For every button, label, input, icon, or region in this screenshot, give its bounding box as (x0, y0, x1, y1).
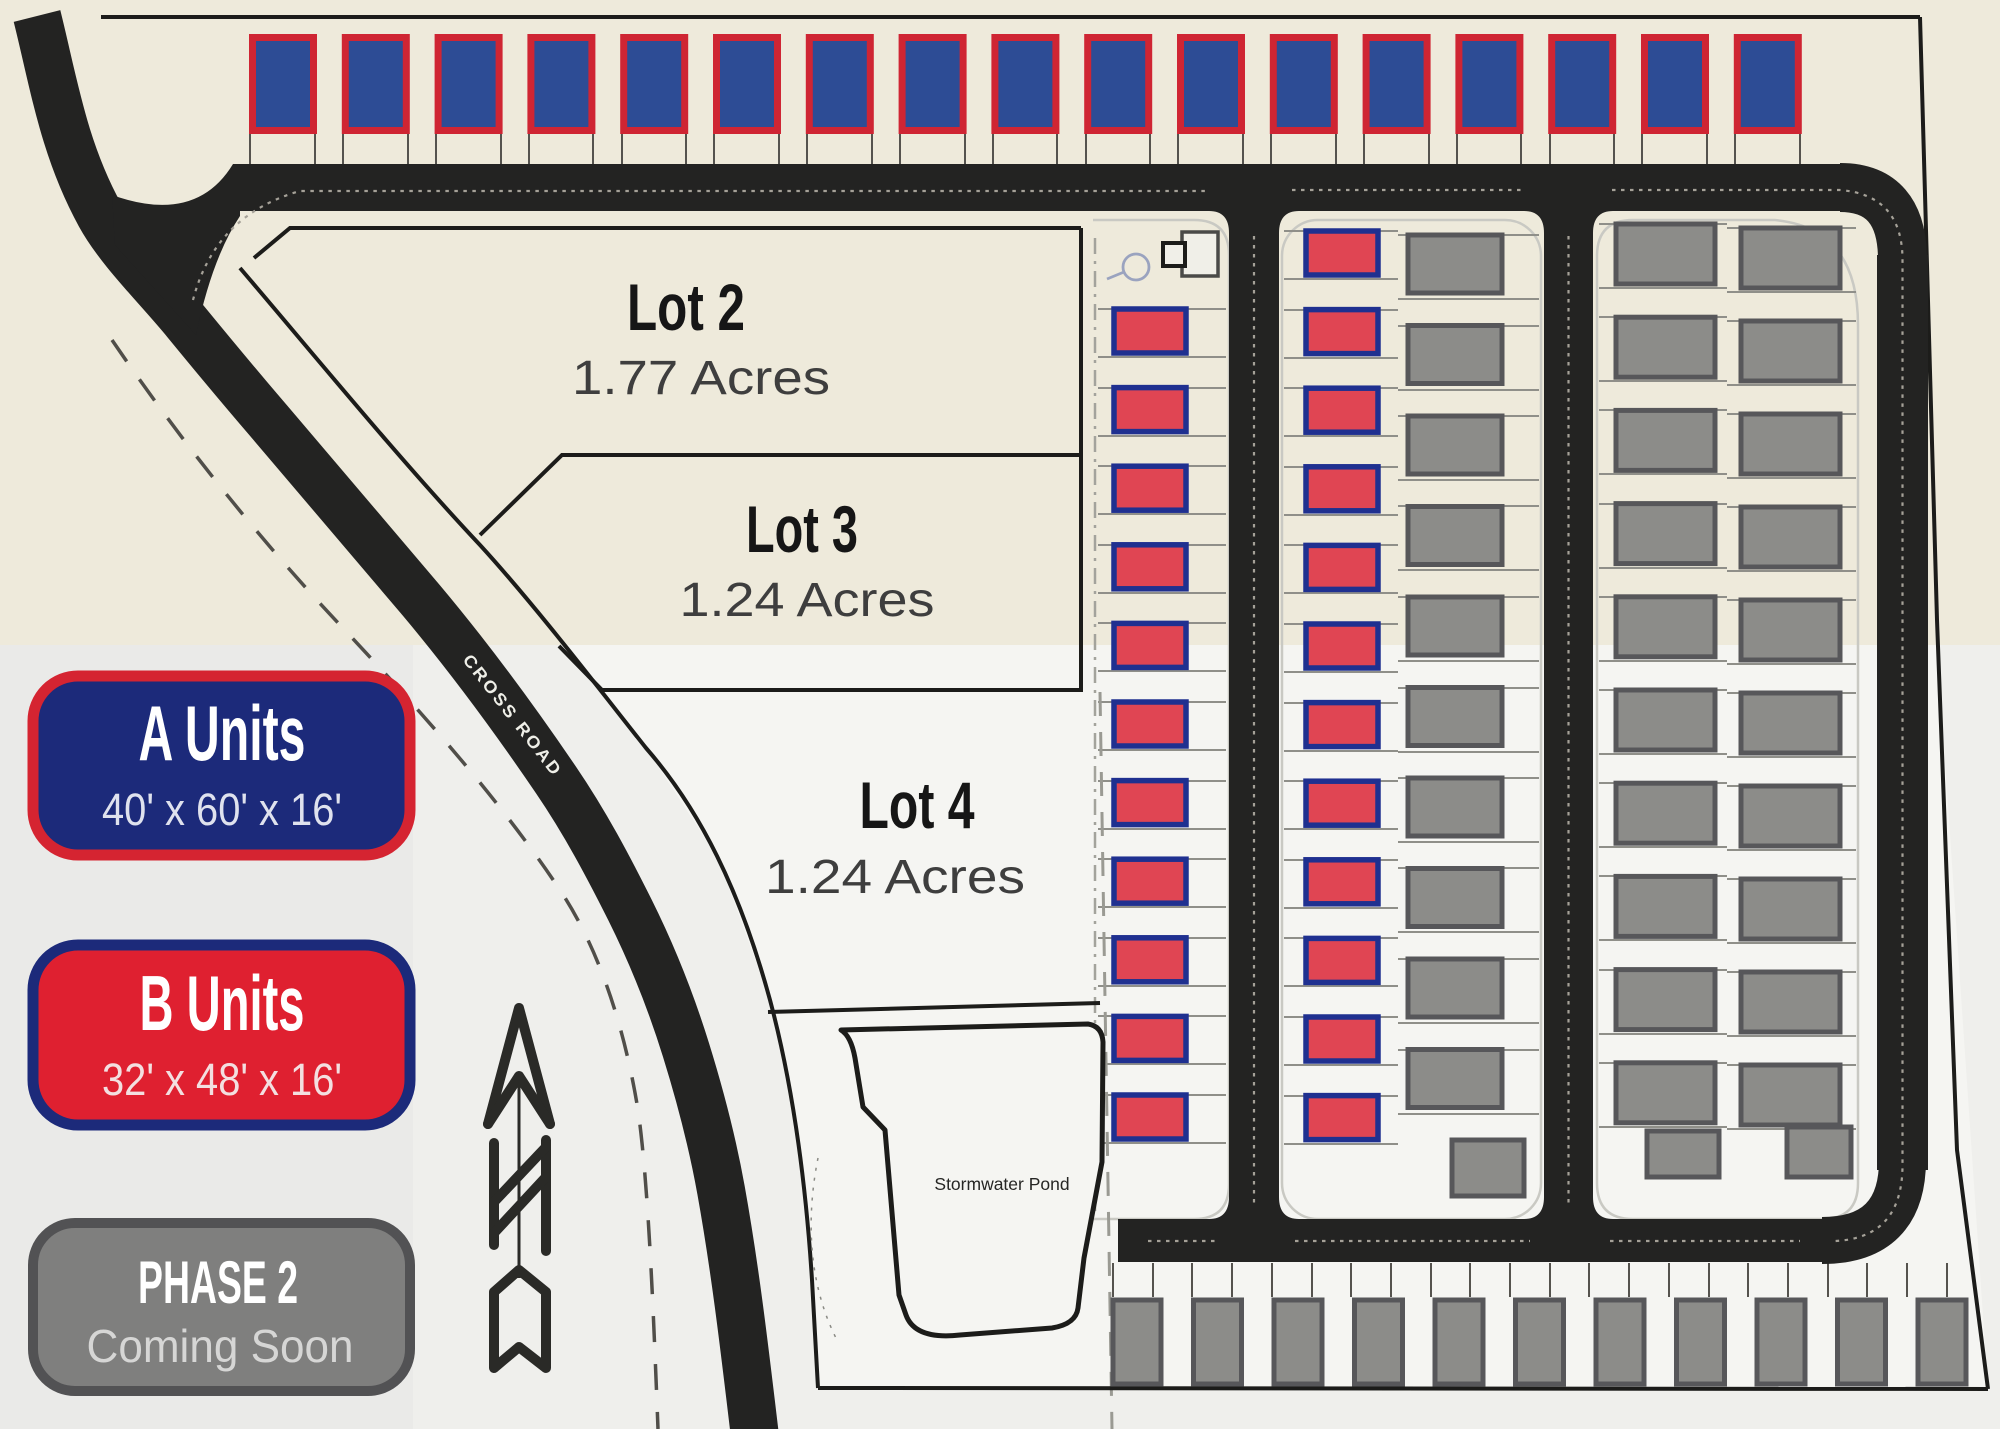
svg-text:Lot 3: Lot 3 (746, 492, 858, 566)
svg-text:Lot 2: Lot 2 (627, 270, 745, 344)
svg-text:1.77 Acres: 1.77 Acres (572, 352, 830, 405)
svg-text:A Units: A Units (139, 689, 306, 777)
svg-text:Stormwater Pond: Stormwater Pond (934, 1174, 1069, 1194)
svg-text:PHASE 2: PHASE 2 (138, 1249, 298, 1316)
svg-text:Lot 4: Lot 4 (860, 768, 975, 842)
svg-text:1.24 Acres: 1.24 Acres (765, 851, 1025, 904)
svg-text:B Units: B Units (140, 959, 305, 1047)
svg-text:1.24 Acres: 1.24 Acres (680, 574, 935, 627)
svg-text:Coming Soon: Coming Soon (87, 1320, 354, 1372)
svg-text:40' x 60' x 16': 40' x 60' x 16' (102, 784, 342, 835)
svg-text:32' x 48' x 16': 32' x 48' x 16' (102, 1054, 342, 1105)
